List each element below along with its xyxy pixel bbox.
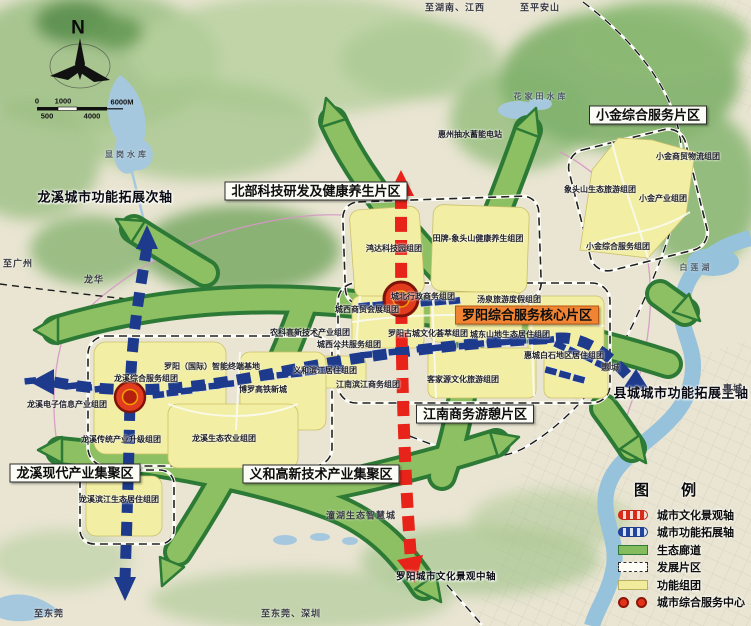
place-label-to-hunan-jiangxi: 至湖南、江西 xyxy=(425,4,485,13)
place-label-to-dongguan: 至东莞 xyxy=(34,610,64,619)
planning-map: N 0 1000 6000M 500 4000 北部科技研发及健康养生片区 小金… xyxy=(0,0,751,626)
legend-label: 发展片区 xyxy=(657,559,701,575)
scale-tick-4000: 4000 xyxy=(84,112,101,120)
culture-axis-symbol xyxy=(618,510,648,520)
development-area-symbol xyxy=(618,562,648,572)
place-label-huicheng-edge: 惠城 xyxy=(723,385,743,394)
region-label-yihe: 义和高新技术产业集聚区 xyxy=(242,465,399,484)
cluster-label-longxi-electronics: 龙溪电子信息产业组团 xyxy=(27,401,107,409)
eco-corridor-symbol xyxy=(618,545,648,555)
cluster-label-baishi: 惠城白石地区居住组团 xyxy=(524,352,604,360)
place-label-to-dongguan-shenzhen: 至东莞、深圳 xyxy=(261,610,321,619)
legend-label: 城市文化景观轴 xyxy=(657,507,734,523)
axis-label-luoyang-central: 罗阳城市文化景观中轴 xyxy=(396,572,496,582)
legend-label: 城市功能拓展轴 xyxy=(657,524,734,540)
cluster-label-tangquan: 汤泉旅游度假组团 xyxy=(477,296,541,304)
legend-label: 功能组团 xyxy=(657,577,701,593)
cluster-label-terminal-base: 罗阳（国际）智能终端基地 xyxy=(164,363,260,371)
scale-tick-1000: 1000 xyxy=(55,97,72,105)
compass-north-label: N xyxy=(71,19,85,38)
cluster-label-xiaojin-industry: 小金产业组团 xyxy=(639,195,687,203)
cluster-label-longxi-riverside: 龙溪滨江生态居住组团 xyxy=(79,496,159,504)
cluster-label-xiaojin-service: 小金综合服务组团 xyxy=(586,243,650,251)
cluster-label-yihe-riverside: 义和滨江居住组团 xyxy=(293,367,357,375)
cluster-label-pumped-storage: 惠州抽水蓄能电站 xyxy=(438,131,502,139)
function-axis-symbol xyxy=(618,527,648,537)
water-label-xiangang-reservoir: 显岗水库 xyxy=(105,151,149,159)
water-label-bailian-lake: 白莲湖 xyxy=(680,264,713,272)
map-legend: 图 例 城市文化景观轴 城市功能拓展轴 生态廊道 发展片区 功能组团 城市综合服… xyxy=(618,479,751,611)
cluster-label-hongda: 鸿达科技园组团 xyxy=(366,245,422,253)
cluster-label-tianpai: 田牌-象头山健康养生组团 xyxy=(433,235,524,243)
scale-tick-500: 500 xyxy=(41,112,54,120)
axis-label-longxi-secondary: 龙溪城市功能拓展次轴 xyxy=(37,191,172,204)
cluster-label-chengxi-public: 城西公共服务组团 xyxy=(317,341,381,349)
legend-item-service-center: 城市综合服务中心 xyxy=(618,594,751,612)
region-label-xiaojin: 小金综合服务片区 xyxy=(589,106,707,125)
scale-tick-0: 0 xyxy=(35,97,39,105)
legend-title: 图 例 xyxy=(634,479,751,500)
water-label-huajiatian-reservoir: 花家田水库 xyxy=(514,93,569,101)
cluster-label-gaotie: 博罗高铁新城 xyxy=(239,386,287,394)
cluster-label-xiangtoushan-tourism: 象头山生态旅游组团 xyxy=(564,186,636,194)
place-label-huicheng-inner: 惠城 xyxy=(601,364,621,373)
cluster-label-longxi-upgrade: 龙溪传统产业升级组团 xyxy=(81,436,161,444)
cluster-label-xiaojin-trade: 小金商贸物流组团 xyxy=(656,153,720,161)
cluster-label-chengdong: 城东山地生态居住组团 xyxy=(470,331,550,339)
cluster-label-longxi-agri: 龙溪生态农业组团 xyxy=(192,435,256,443)
cluster-label-jiangnan-riverside: 江南滨江商务组团 xyxy=(336,381,400,389)
cluster-label-chengbei: 城北行政商务组团 xyxy=(391,293,455,301)
region-label-longxi: 龙溪现代产业集聚区 xyxy=(9,464,140,483)
region-label-north: 北部科技研发及健康养生片区 xyxy=(224,182,407,201)
legend-item-development-area: 发展片区 xyxy=(618,559,751,577)
legend-label: 生态廊道 xyxy=(657,542,701,558)
service-center-symbol xyxy=(618,597,648,607)
cluster-label-gucheng: 罗阳古城文化荟萃组团 xyxy=(388,330,468,338)
region-label-luoyang-core: 罗阳综合服务核心片区 xyxy=(455,306,599,325)
legend-item-functional-cluster: 功能组团 xyxy=(618,576,751,594)
cluster-label-kejiayuan: 客家源文化旅游组团 xyxy=(427,376,499,384)
legend-item-eco-corridor: 生态廊道 xyxy=(618,541,751,559)
cluster-label-longxi-service: 龙溪综合服务组团 xyxy=(114,375,178,383)
cluster-label-nongke: 农科高新技术产业组团 xyxy=(270,329,350,337)
place-label-to-pinganshan: 至平安山 xyxy=(520,4,560,13)
place-label-to-guangzhou: 至广州 xyxy=(3,260,33,269)
place-label-longhua: 龙华 xyxy=(84,276,104,285)
functional-cluster-symbol xyxy=(618,580,648,590)
region-label-jiangnan: 江南商务游憩片区 xyxy=(416,405,534,424)
legend-item-culture-axis: 城市文化景观轴 xyxy=(618,506,751,524)
cluster-label-chengxi-trade: 城西商贸会展组团 xyxy=(335,306,399,314)
place-label-tonghu: 潼湖生态智慧城 xyxy=(326,512,396,521)
scale-tick-6000m: 6000M xyxy=(111,98,134,106)
legend-item-function-axis: 城市功能拓展轴 xyxy=(618,524,751,542)
legend-label: 城市综合服务中心 xyxy=(657,594,745,610)
